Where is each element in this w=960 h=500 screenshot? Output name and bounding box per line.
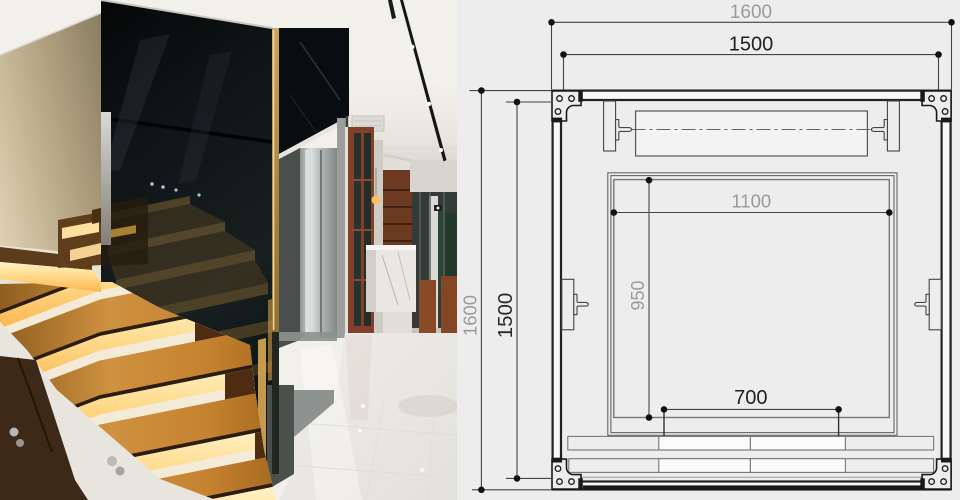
svg-text:1500: 1500 xyxy=(494,293,517,339)
svg-text:1500: 1500 xyxy=(729,34,774,56)
svg-text:1100: 1100 xyxy=(731,191,771,212)
svg-text:1600: 1600 xyxy=(730,2,772,23)
svg-text:1600: 1600 xyxy=(459,295,480,336)
svg-text:950: 950 xyxy=(628,280,648,310)
svg-text:700: 700 xyxy=(734,387,767,409)
